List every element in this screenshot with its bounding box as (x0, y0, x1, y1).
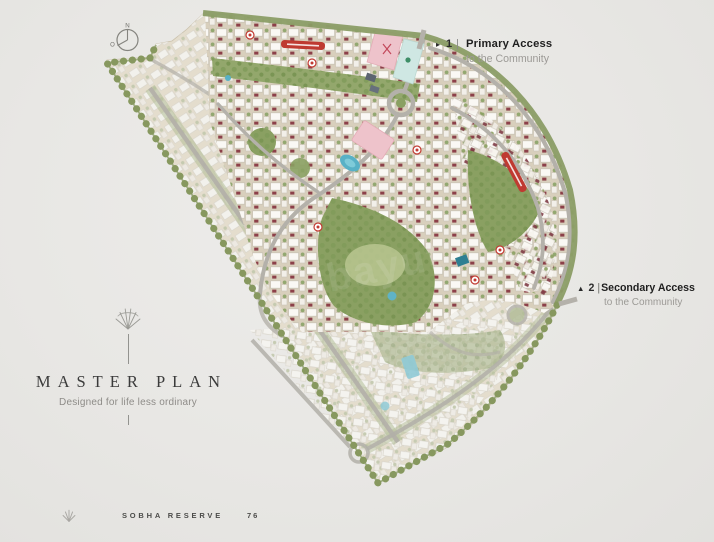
park-pond (388, 292, 397, 301)
divider: | (597, 282, 600, 295)
footer-shell-icon (60, 509, 78, 522)
brand-name: SOBHA RESERVE (122, 511, 223, 520)
primary-access-title: Primary Access (466, 38, 552, 51)
compass-icon: N O (110, 23, 138, 51)
faded-pond (381, 402, 390, 411)
page-footer: SOBHA RESERVE 76 (60, 509, 259, 522)
secondary-access-arrow-icon: ▲ (577, 284, 584, 293)
primary-access-arrow-icon: ▸ (436, 40, 440, 49)
amenity-marker (496, 246, 504, 254)
secondary-access-title: Secondary Access (601, 282, 695, 295)
divider-line (128, 334, 129, 364)
secondary-access-number: 2 (588, 282, 594, 295)
compass-north-label: N (125, 23, 129, 30)
title-block: MASTER PLAN Designed for life less ordin… (26, 308, 230, 425)
brochure-page: bayut N O ▸ 1 | Primary Access to the Co… (0, 0, 714, 542)
divider-line (128, 415, 129, 425)
master-plan-map: bayut N O (0, 0, 714, 542)
amenity-marker (413, 146, 421, 154)
amenity-marker (471, 276, 479, 284)
primary-access-note: ▸ 1 | Primary Access to the Community (436, 38, 552, 65)
amenity-marker (308, 59, 316, 67)
divider: | (456, 38, 459, 51)
amenity-marker (246, 31, 254, 39)
secondary-access-note: ▲ 2 | Secondary Access to the Community (577, 282, 695, 309)
page-title: MASTER PLAN (26, 372, 230, 392)
faded-roundabout (508, 306, 526, 324)
primary-access-number: 1 (446, 38, 452, 51)
shell-logo-icon (113, 308, 143, 330)
secondary-access-subtitle: to the Community (604, 297, 695, 309)
primary-access-subtitle: to the Community (466, 53, 552, 65)
page-number: 76 (247, 511, 259, 520)
amenity-marker (314, 223, 322, 231)
page-tagline: Designed for life less ordinary (26, 397, 230, 408)
compass-west-label: O (110, 43, 115, 49)
